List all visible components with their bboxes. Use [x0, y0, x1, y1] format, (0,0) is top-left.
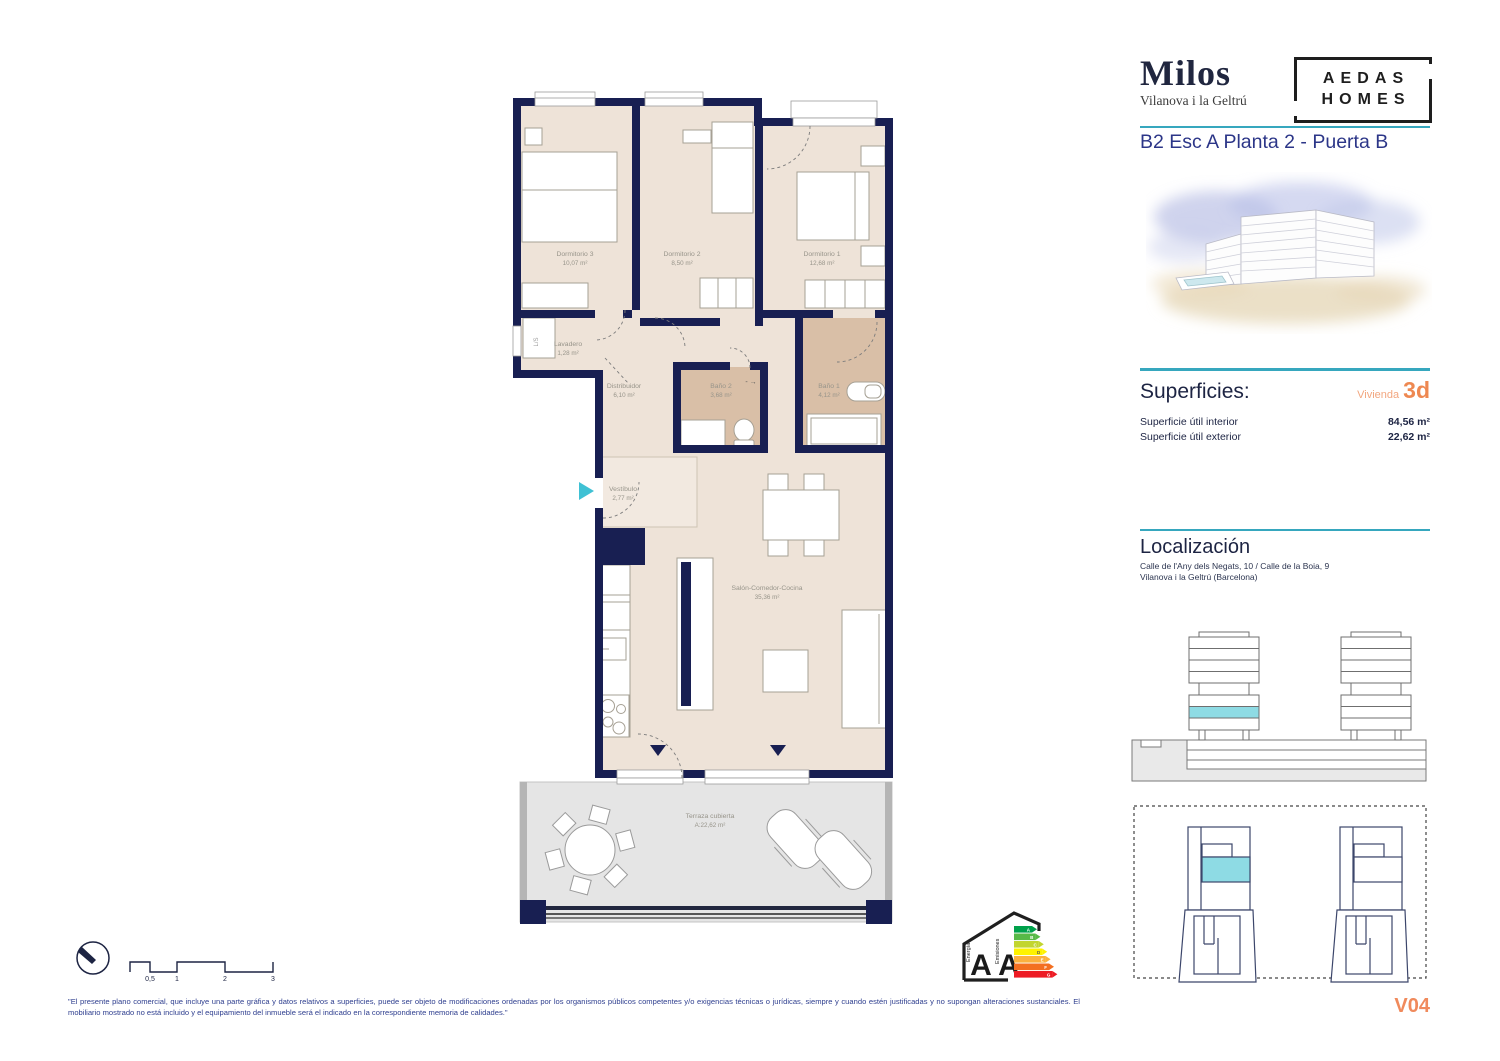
bed-double	[797, 172, 869, 240]
svg-text:0,5: 0,5	[145, 976, 155, 983]
localizacion-section: Localización Calle de l'Any dels Negats,…	[1140, 529, 1430, 583]
room-label: Lavadero	[554, 341, 583, 348]
svg-text:1,28 m²: 1,28 m²	[557, 350, 578, 357]
scale-bar: 0,5 1 2 3	[70, 930, 290, 985]
svg-text:A:22,62 m²: A:22,62 m²	[695, 822, 726, 829]
shelf	[683, 130, 711, 143]
svg-text:10,07 m²: 10,07 m²	[563, 260, 588, 267]
plan-version: V04	[1140, 995, 1430, 1018]
header: Milos Vilanova i la Geltrú AEDAS HOMES	[1140, 55, 1432, 123]
dining-table	[763, 490, 839, 540]
window-sill	[791, 101, 877, 118]
room-label: Salón-Comedor-Cocina	[731, 585, 802, 592]
vivienda-label: Vivienda	[1357, 389, 1399, 401]
building-render	[1146, 172, 1432, 334]
chair	[804, 540, 824, 556]
footprint-right	[1331, 827, 1408, 982]
room-label: Dormitorio 1	[803, 251, 840, 258]
tower-right	[1341, 632, 1411, 740]
superficies-section: Superficies: Vivienda3d Superficie útil …	[1140, 368, 1430, 445]
logo-border-gap	[1293, 101, 1298, 116]
terrace-door	[617, 770, 683, 778]
svg-text:8,50 m²: 8,50 m²	[671, 260, 692, 267]
compass-needle	[78, 947, 96, 964]
header-rule	[1140, 126, 1430, 128]
bed-double	[522, 152, 617, 242]
address: Calle de l'Any dels Negats, 10 / Calle d…	[1140, 561, 1430, 583]
svg-text:2,77 m²: 2,77 m²	[612, 495, 633, 502]
energy-rating-letter: A	[970, 949, 992, 982]
legal-disclaimer: "El presente plano comercial, que incluy…	[68, 997, 1080, 1018]
room-label: Vestíbulo	[609, 486, 637, 493]
logo-border-gap	[1428, 64, 1433, 79]
aedas-homes-logo: AEDAS HOMES	[1294, 57, 1432, 123]
elevation-diagram	[1130, 623, 1430, 788]
plan-title: B2 Esc A Planta 2 - Puerta B	[1140, 131, 1432, 154]
terrace-slider	[705, 770, 809, 778]
room-label: Baño 1	[818, 383, 840, 390]
entry-arrow-icon	[579, 482, 594, 500]
svg-text:3,68 m²: 3,68 m²	[710, 392, 731, 399]
room-label: Distribuidor	[607, 383, 642, 390]
coffee-table	[763, 650, 808, 692]
svg-text:E: E	[1041, 957, 1044, 962]
superficies-heading: Superficies:	[1140, 380, 1250, 404]
highlighted-unit	[1202, 857, 1250, 882]
chair	[768, 540, 788, 556]
bed-single	[712, 122, 753, 213]
room-label: Baño 2	[710, 383, 732, 390]
room-label: Terraza cubierta	[686, 813, 735, 820]
bath2-entry-mark: - →	[745, 379, 756, 386]
vivienda-value: 3d	[1403, 377, 1430, 403]
chair	[768, 474, 788, 490]
room-label: Dormitorio 2	[663, 251, 700, 258]
room-label: Dormitorio 3	[556, 251, 593, 258]
sofa	[842, 610, 889, 728]
energy-rating-icon: Energía Emisiones A A A B C D E	[950, 900, 1070, 988]
localizacion-heading: Localización	[1140, 536, 1430, 559]
scale-ticks: 0,5 1 2 3	[145, 976, 275, 983]
highlighted-floor	[1189, 707, 1259, 719]
section-rule	[1140, 368, 1430, 371]
svg-text:2: 2	[223, 976, 227, 983]
nightstand	[861, 246, 885, 266]
toilet	[734, 419, 754, 441]
floorplan: Dormitorio 3 10,07 m² Dormitorio 2 8,50 …	[505, 90, 905, 935]
shower-tray	[681, 420, 725, 446]
window	[645, 98, 703, 106]
svg-text:35,36 m²: 35,36 m²	[755, 594, 780, 601]
svg-text:4,12 m²: 4,12 m²	[818, 392, 839, 399]
nightstand	[525, 128, 542, 145]
window	[535, 98, 595, 106]
wardrobe	[700, 278, 753, 308]
shower-tray	[807, 414, 881, 448]
chair	[804, 474, 824, 490]
svg-text:1: 1	[175, 976, 179, 983]
svg-text:G: G	[1047, 972, 1051, 977]
entry-door-opening	[595, 478, 603, 508]
window	[793, 118, 875, 126]
surface-row: Superficie útil interior 84,56 m²	[1140, 415, 1430, 430]
section-rule	[1140, 529, 1430, 531]
terrace-railing	[535, 906, 877, 910]
svg-text:F: F	[1044, 965, 1047, 970]
footprint-left	[1179, 827, 1256, 982]
surface-row: Superficie útil exterior 22,62 m²	[1140, 430, 1430, 445]
nightstand	[861, 146, 885, 166]
svg-text:3: 3	[271, 976, 275, 983]
tower-left	[1189, 632, 1259, 740]
laundry-mark: L/S	[534, 337, 540, 346]
window	[513, 326, 521, 356]
dresser	[522, 283, 588, 308]
brochure-page: Dormitorio 3 10,07 m² Dormitorio 2 8,50 …	[0, 0, 1500, 1061]
energy-bars: A B C D E F G	[1014, 926, 1057, 978]
building-render-art	[1146, 172, 1432, 334]
svg-text:12,68 m²: 12,68 m²	[810, 260, 835, 267]
key-plan	[1130, 798, 1430, 988]
svg-text:6,10 m²: 6,10 m²	[613, 392, 634, 399]
